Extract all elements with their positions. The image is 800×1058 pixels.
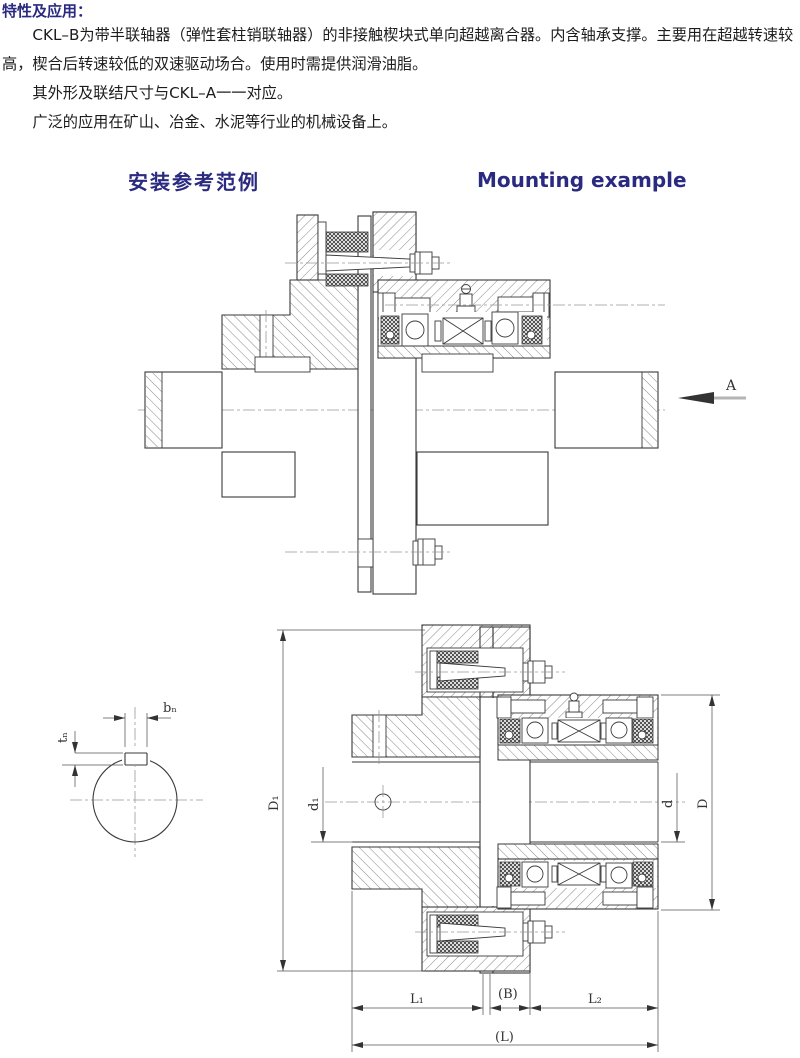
dim-label-bn: bₙ	[163, 701, 177, 716]
catalog-page: 特性及应用： CKL–B为带半联轴器（弹性套柱销联轴器）的非接触楔块式单向超越离…	[0, 0, 800, 1058]
keyway-section-drawing: bₙ tₙ	[45, 685, 235, 865]
drawing-heading-cn: 安装参考范例	[128, 166, 260, 195]
dim-label-D: D	[696, 799, 711, 809]
view-arrow-label: A	[725, 378, 737, 394]
description-text: CKL–B为带半联轴器（弹性套柱销联轴器）的非接触楔块式单向超越离合器。内含轴承…	[2, 21, 797, 137]
dim-label-L1: L₁	[410, 992, 424, 1007]
drawing-heading-en: Mounting example	[477, 168, 687, 192]
section-heading: 特性及应用：	[2, 0, 92, 21]
dim-label-D1: D₁	[267, 795, 282, 811]
paragraph: 其外形及联结尺寸与CKL–A一一对应。	[2, 79, 797, 108]
paragraph: CKL–B为带半联轴器（弹性套柱销联轴器）的非接触楔块式单向超越离合器。内含轴承…	[2, 21, 797, 79]
paragraph: 广泛的应用在矿山、冶金、水泥等行业的机械设备上。	[2, 108, 797, 137]
dim-label-B: (B)	[498, 987, 518, 1002]
mounting-section-drawing: A	[130, 202, 770, 612]
dim-label-L2: L₂	[588, 992, 602, 1007]
dim-label-d: d	[661, 800, 676, 808]
dim-label-tn: tₙ	[56, 732, 71, 743]
dim-label-d1: d₁	[307, 797, 322, 811]
dim-label-L: (L)	[495, 1030, 514, 1045]
dimension-drawing: D₁ d₁ d D L₁ (B)	[265, 615, 735, 1058]
